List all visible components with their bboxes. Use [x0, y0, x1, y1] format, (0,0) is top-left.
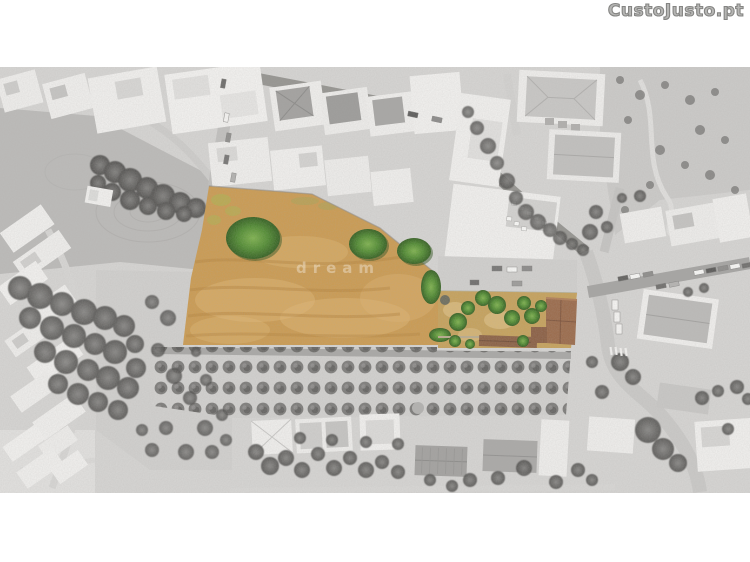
bottom-margin — [0, 493, 750, 562]
listing-photo-frame: CustoJusto.pt dream — [0, 0, 750, 562]
photo-grain — [0, 67, 750, 493]
custojusto-logo: CustoJusto.pt — [608, 1, 744, 21]
watermark: dream — [296, 259, 380, 277]
aerial-photo — [0, 0, 750, 562]
